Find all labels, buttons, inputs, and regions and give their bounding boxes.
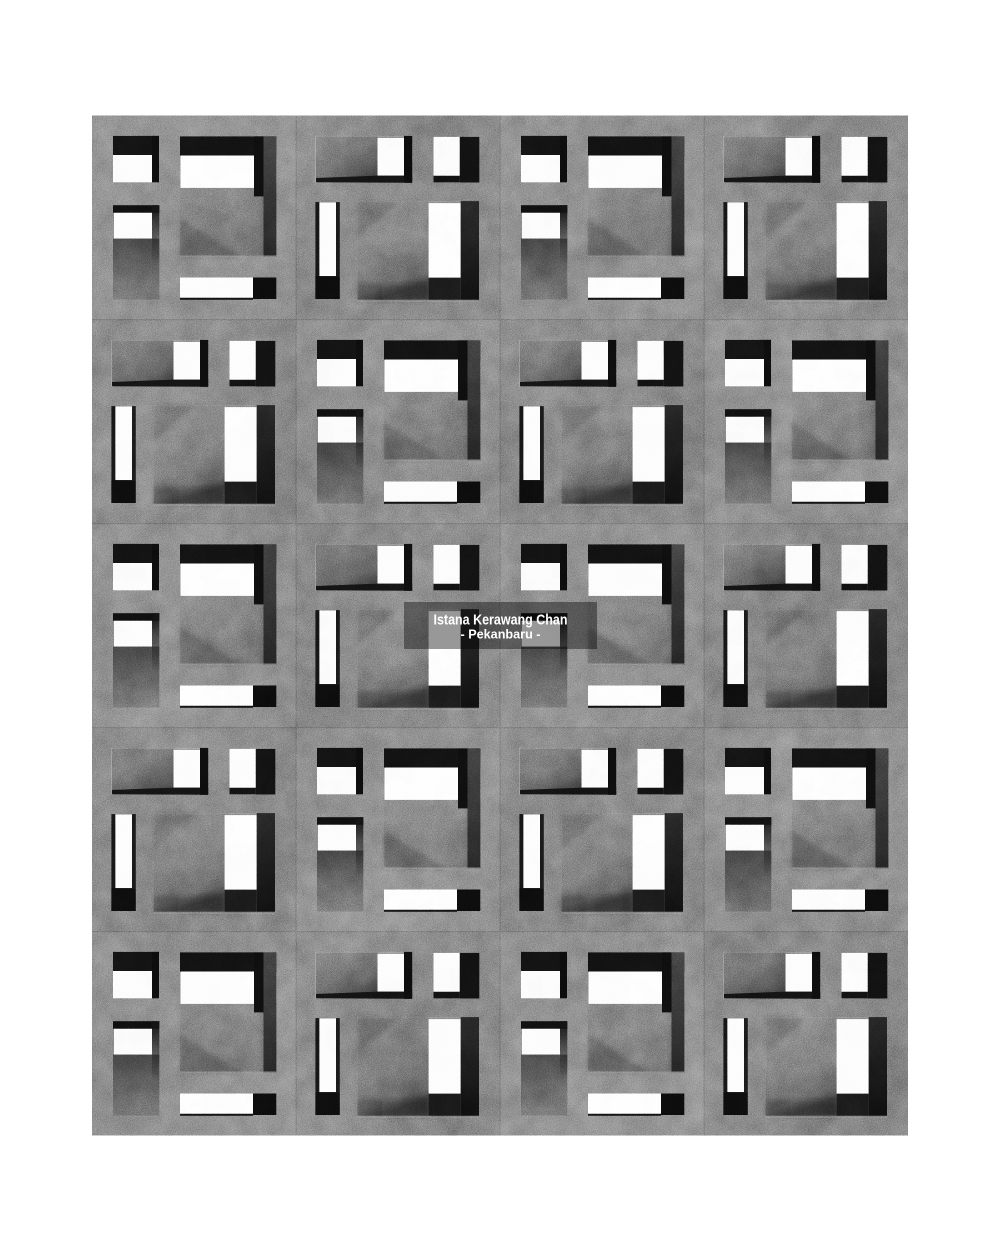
- svg-text:- Pekanbaru -: - Pekanbaru -: [461, 627, 541, 642]
